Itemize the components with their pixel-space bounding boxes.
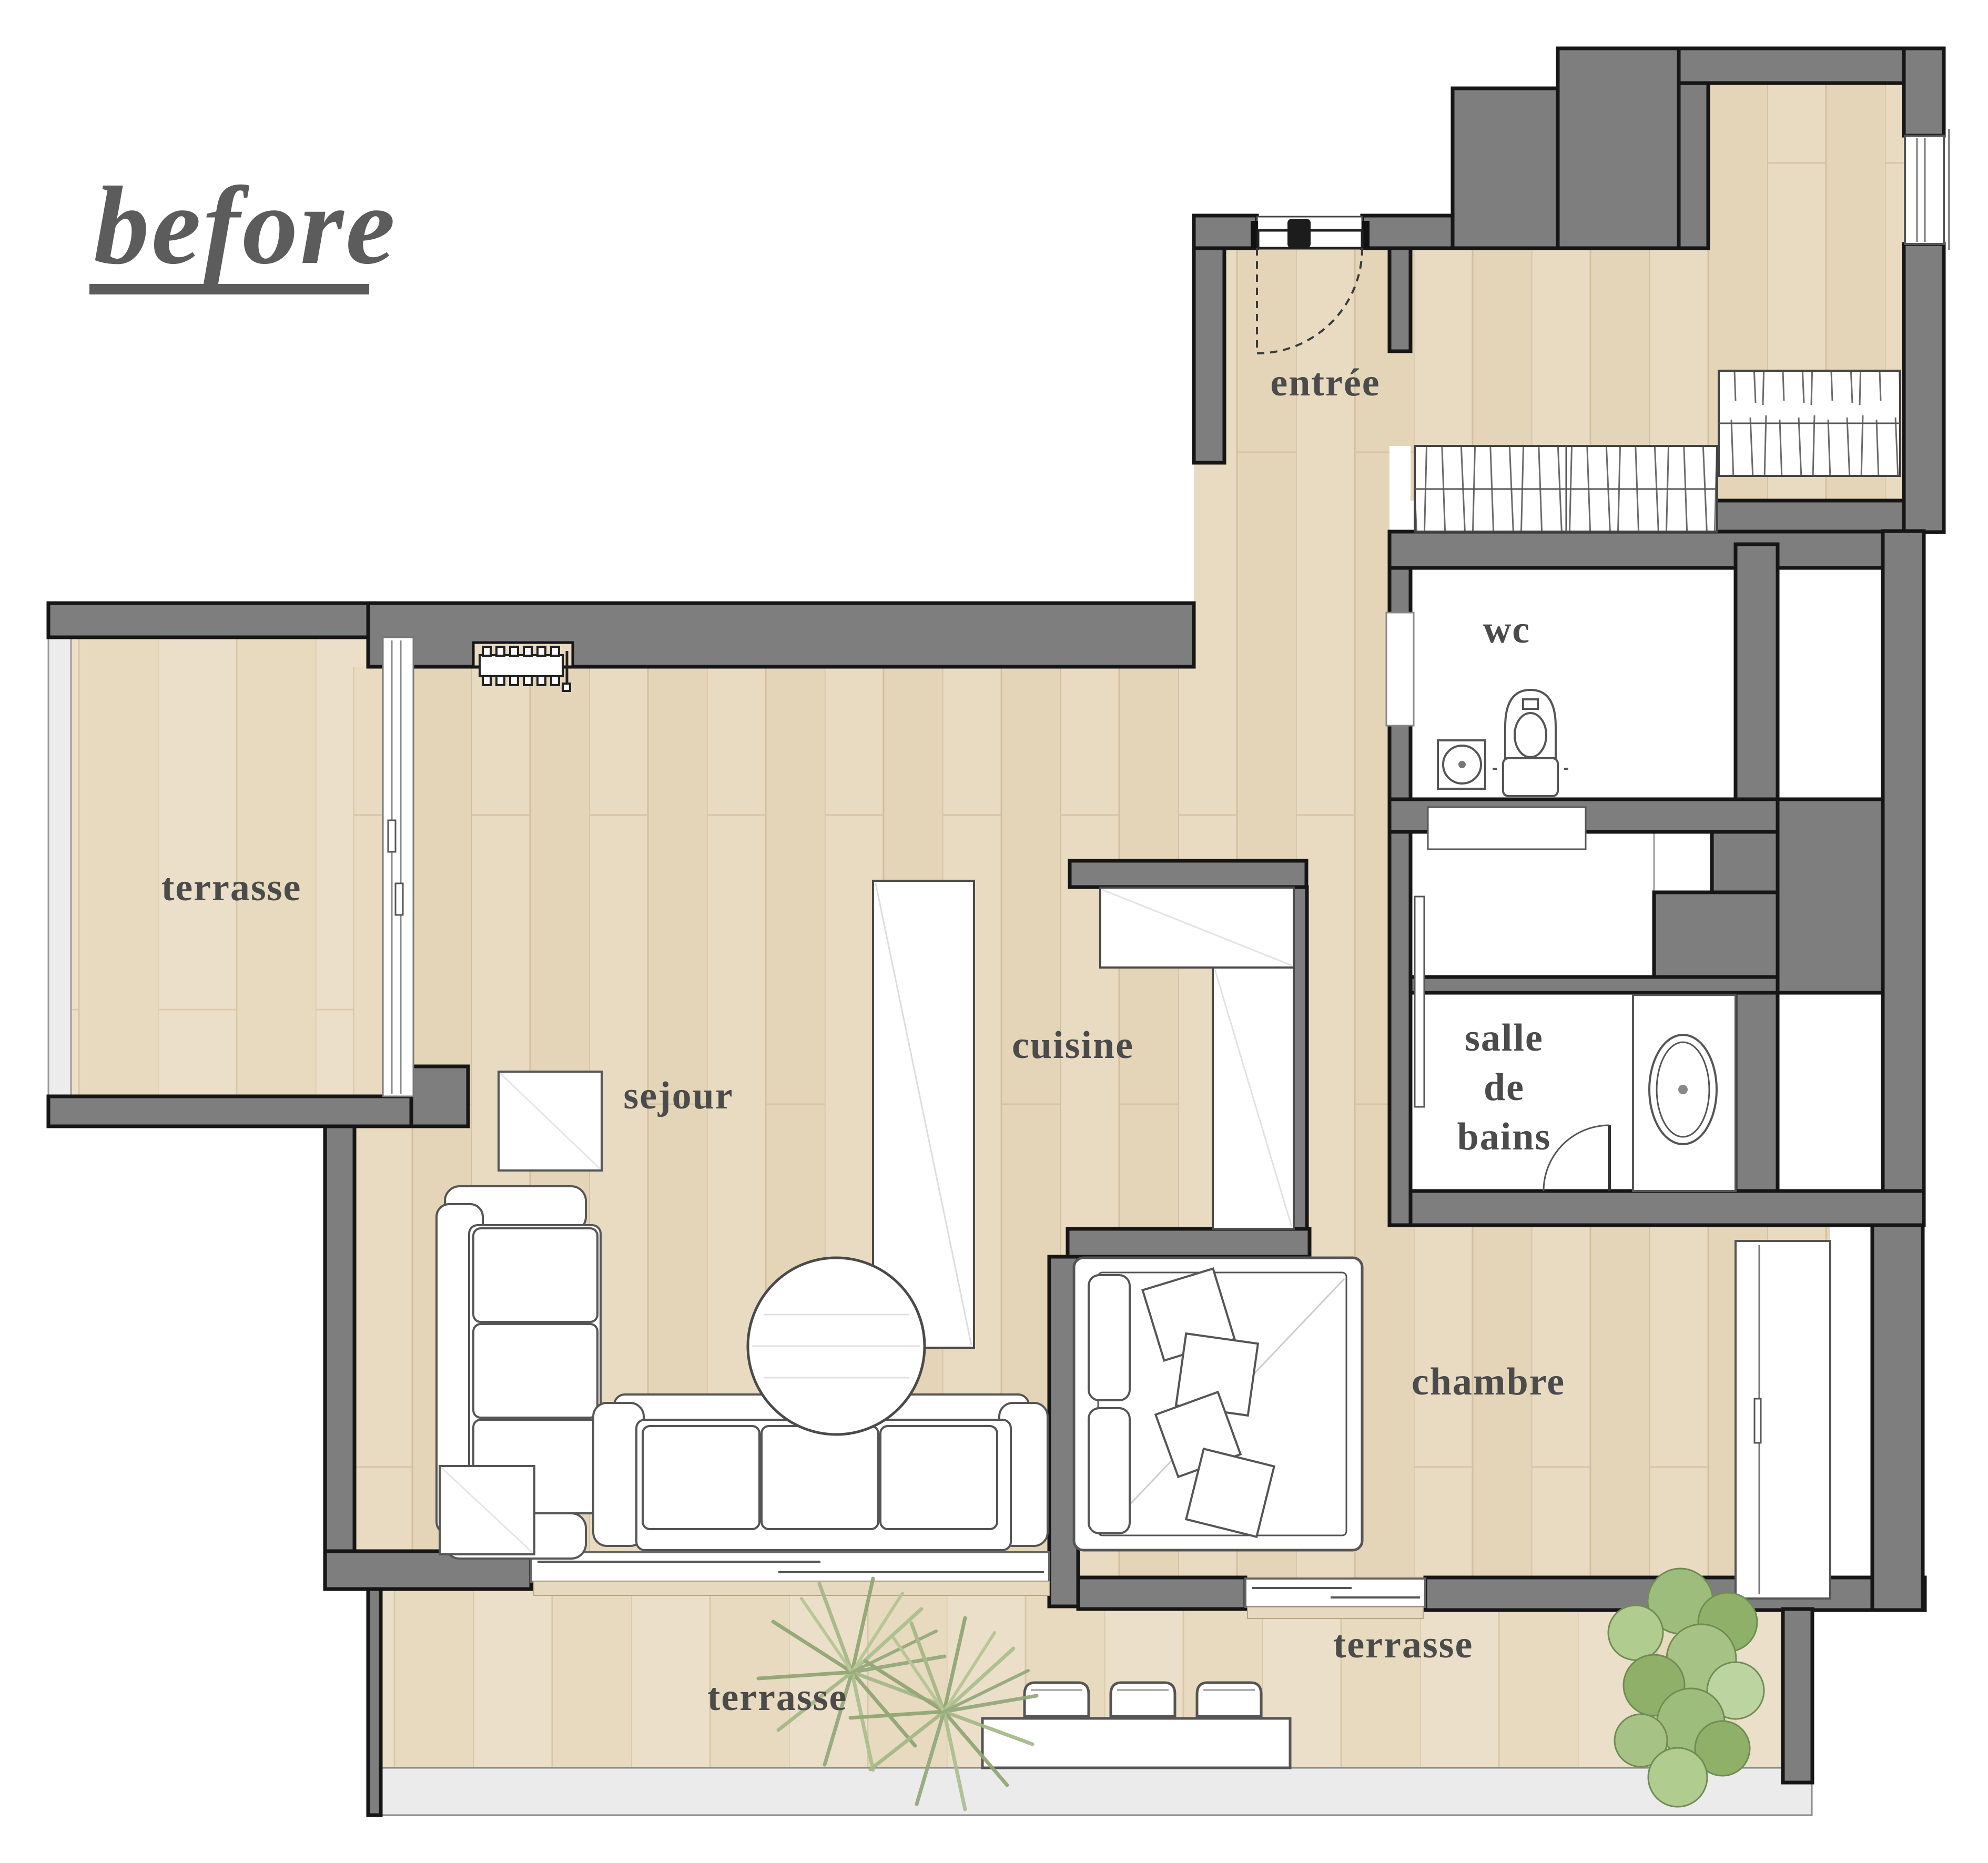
radiator-tooth <box>524 676 532 685</box>
label-sdb-line2: de <box>1484 1066 1525 1109</box>
radiator-tooth <box>483 647 491 656</box>
radiator-tooth <box>551 647 559 656</box>
glass-door-terrace-left <box>383 637 413 1096</box>
door-leaf-storage <box>1415 897 1424 1107</box>
label-sejour: sejour <box>623 1074 733 1117</box>
bed-pillow <box>1089 1275 1130 1400</box>
sofa-cushion <box>762 1426 878 1529</box>
sdb-side-shaft <box>1778 993 1883 1191</box>
label-terrasse-bottom-left: terrasse <box>707 1676 848 1719</box>
wardrobe-body <box>1736 1241 1830 1599</box>
wall-wc-right <box>1736 544 1778 799</box>
threshold <box>1247 1607 1423 1618</box>
sofa-cushion <box>473 1228 597 1322</box>
floor-plan-drawing: before <box>0 0 1988 1863</box>
radiator-valve <box>563 684 570 691</box>
wall-outer-right <box>1883 531 1924 1225</box>
wall-sdb-chambre <box>1411 1191 1924 1225</box>
bed-pillow <box>1089 1408 1130 1533</box>
glass-door-sejour <box>531 1552 1049 1582</box>
basin-drain <box>1458 761 1466 768</box>
door-handle-mark <box>388 820 395 852</box>
label-terrasse-bottom-right: terrasse <box>1333 1623 1474 1666</box>
radiator-tooth <box>537 647 545 656</box>
wall-step <box>411 1066 468 1126</box>
wall-sejour-left <box>325 1126 354 1589</box>
radiator-tooth <box>483 676 491 685</box>
radiator-tooth <box>510 647 518 656</box>
wall <box>1654 892 1778 977</box>
label-sdb-line3: bains <box>1457 1115 1551 1158</box>
shaft <box>1778 544 1883 799</box>
round-coffee-table <box>748 1258 925 1434</box>
entrance-door-handle <box>1287 219 1311 248</box>
door-handle-mark <box>395 883 403 915</box>
wall-chambre-right <box>1872 1225 1923 1610</box>
radiator-tooth <box>524 647 532 656</box>
wall <box>1712 832 1778 892</box>
plan-title: before <box>89 164 397 294</box>
threshold <box>534 1582 1049 1595</box>
wall-hall-left <box>1194 248 1224 463</box>
radiator-tooth <box>537 676 545 685</box>
wall <box>1778 799 1883 993</box>
wall <box>1362 216 1453 248</box>
wall <box>1679 83 1708 248</box>
label-sdb-line1: salle <box>1465 1016 1544 1060</box>
toilet-button <box>1523 699 1538 709</box>
wall <box>1904 244 1944 532</box>
wall-terrace-right <box>1783 1609 1812 1783</box>
wardrobe-chambre <box>1736 1241 1830 1599</box>
title-underline <box>89 284 369 294</box>
label-terrasse-left: terrasse <box>161 866 302 909</box>
wall <box>1078 1577 1245 1609</box>
wall-under-wardrobe <box>1389 532 1923 568</box>
radiator-tooth <box>510 676 518 685</box>
storage-unit <box>1428 807 1586 849</box>
double-bed <box>1074 1258 1362 1550</box>
sofa-cushion <box>643 1426 759 1529</box>
floor-plan-page: before <box>0 0 1988 1863</box>
hand-basin <box>1438 740 1485 789</box>
label-chambre: chambre <box>1412 1360 1565 1403</box>
wall <box>1453 88 1558 248</box>
radiator-tooth <box>551 676 559 685</box>
wall <box>1194 216 1257 248</box>
radiator-tooth <box>496 647 504 656</box>
floor-storage <box>1411 832 1654 977</box>
washbasin-drain <box>1678 1085 1688 1094</box>
terrace-chair <box>1197 1683 1261 1716</box>
toilet-tank <box>1503 758 1558 796</box>
wall-hall-right <box>1389 248 1411 351</box>
radiator <box>473 643 573 691</box>
door-wc <box>1386 613 1414 726</box>
wardrobe-handle <box>1754 1399 1761 1443</box>
wall <box>1679 48 1941 83</box>
terrace-chair <box>1025 1683 1089 1716</box>
wall-terrace-left-post <box>368 1589 381 1815</box>
floor-opening <box>1389 351 1411 446</box>
sofa-cushion <box>880 1426 997 1529</box>
wall-under-storage <box>1411 977 1778 993</box>
label-cuisine: cuisine <box>1012 1024 1134 1067</box>
storage-niche <box>1654 832 1712 892</box>
bed-cushion <box>1186 1449 1274 1536</box>
wall <box>1708 501 1904 532</box>
wall <box>1904 48 1944 136</box>
window-chambre <box>1245 1579 1425 1607</box>
wall-kitchen-bottom <box>1068 1229 1310 1257</box>
wall-kitchen-top <box>1070 861 1306 887</box>
rail-bottom-terrace <box>370 1768 1812 1815</box>
wall-top-terrace <box>48 603 368 637</box>
sofa-cushion <box>473 1324 597 1418</box>
wall-terrace-bottom <box>48 1096 468 1126</box>
plan-title-text: before <box>94 164 397 287</box>
label-entree: entrée <box>1270 361 1380 404</box>
wall <box>1558 48 1679 248</box>
radiator-body <box>480 655 563 676</box>
terrace-chair <box>1111 1683 1175 1716</box>
rail-left-terrace <box>48 637 71 1096</box>
radiator-tooth <box>496 676 504 685</box>
label-wc: wc <box>1483 608 1530 651</box>
toilet-seat <box>1515 713 1546 757</box>
